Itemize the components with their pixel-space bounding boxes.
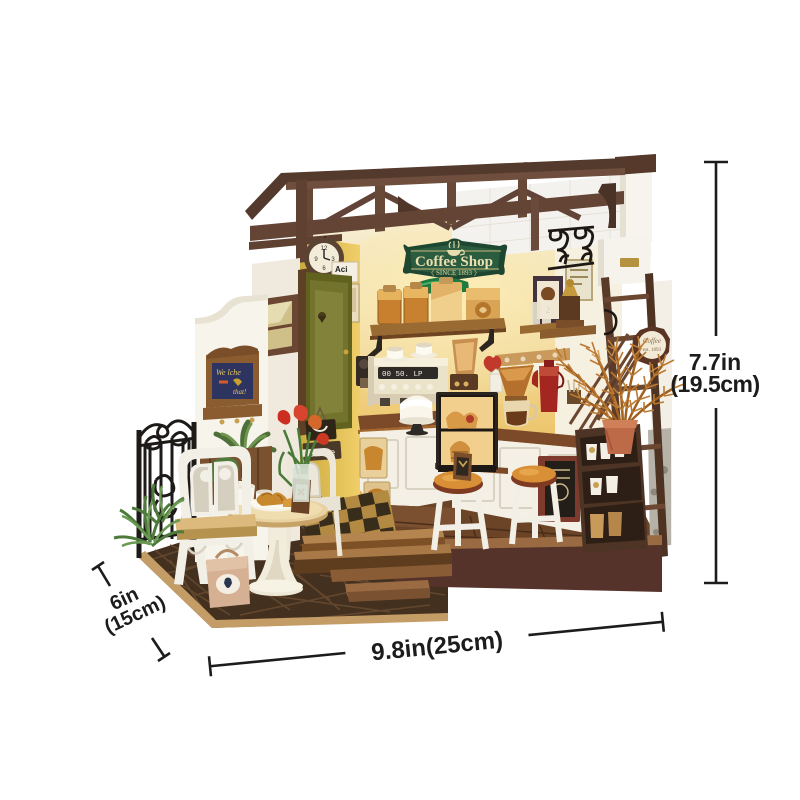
- svg-text:We lche: We lche: [216, 368, 241, 377]
- svg-text:9.8in(25cm): 9.8in(25cm): [370, 627, 504, 667]
- svg-text:that!: that!: [233, 388, 247, 396]
- svg-text:00 50. LP: 00 50. LP: [382, 371, 423, 379]
- svg-text:Aci: Aci: [335, 265, 347, 274]
- svg-text:Coffee Shop: Coffee Shop: [415, 254, 493, 270]
- svg-text:〈 SINCE 1893 〉: 〈 SINCE 1893 〉: [427, 269, 480, 277]
- svg-text:(19.5cm): (19.5cm): [670, 371, 759, 397]
